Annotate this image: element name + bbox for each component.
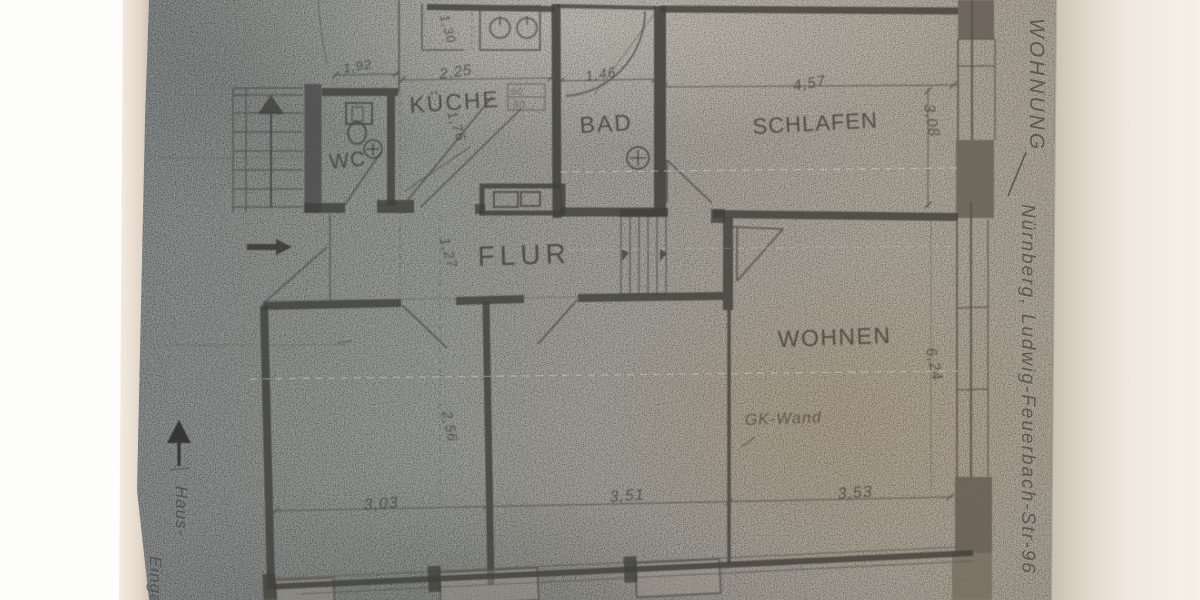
svg-text:60: 60 [513, 100, 525, 111]
svg-text:FLUR: FLUR [477, 238, 571, 272]
svg-text:Eingang: Eingang [146, 556, 165, 600]
svg-text:3,03: 3,03 [363, 495, 399, 514]
svg-text:GK-Wand: GK-Wand [745, 409, 823, 429]
svg-text:BAD: BAD [579, 109, 634, 138]
svg-text:60: 60 [511, 87, 523, 98]
svg-text:WOHNEN: WOHNEN [777, 322, 892, 352]
svg-text:Haus-: Haus- [172, 486, 191, 536]
svg-text:WC: WC [328, 147, 367, 174]
svg-text:WOHNUNG: WOHNUNG [1025, 18, 1048, 152]
svg-text:Nürnberg, Ludwig-Feuerbach-Str: Nürnberg, Ludwig-Feuerbach-Str-96 [1017, 204, 1038, 575]
svg-text:3,51: 3,51 [609, 487, 645, 506]
svg-text:3,53: 3,53 [837, 484, 873, 503]
